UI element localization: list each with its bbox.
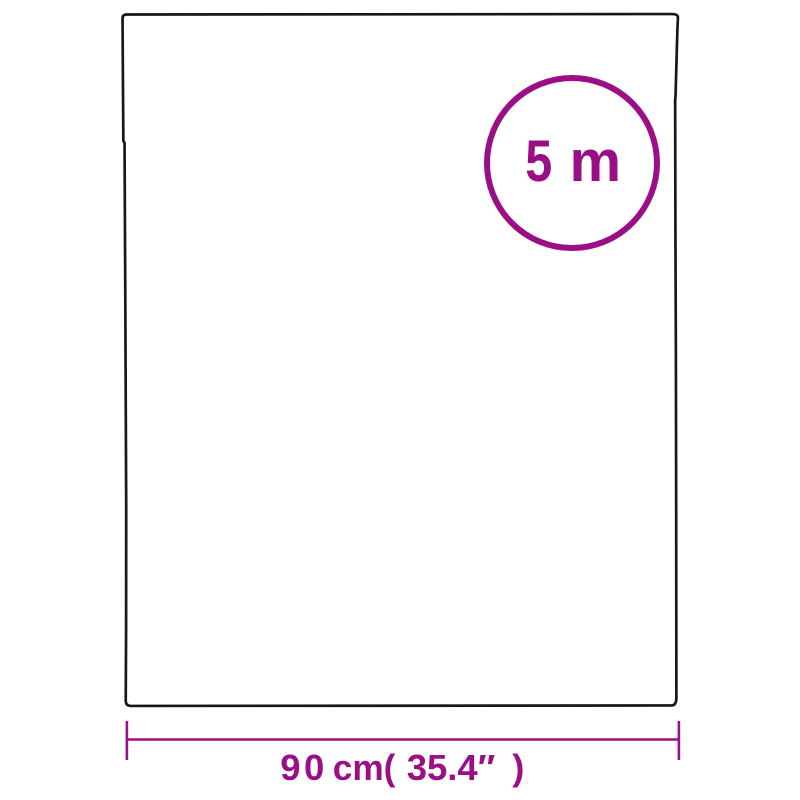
svg-text:5: 5: [525, 129, 552, 194]
svg-text:35.4″: 35.4″: [407, 747, 496, 788]
svg-text:): ): [512, 747, 524, 788]
svg-text:cm(: cm(: [333, 747, 396, 788]
svg-text:m: m: [570, 129, 622, 194]
